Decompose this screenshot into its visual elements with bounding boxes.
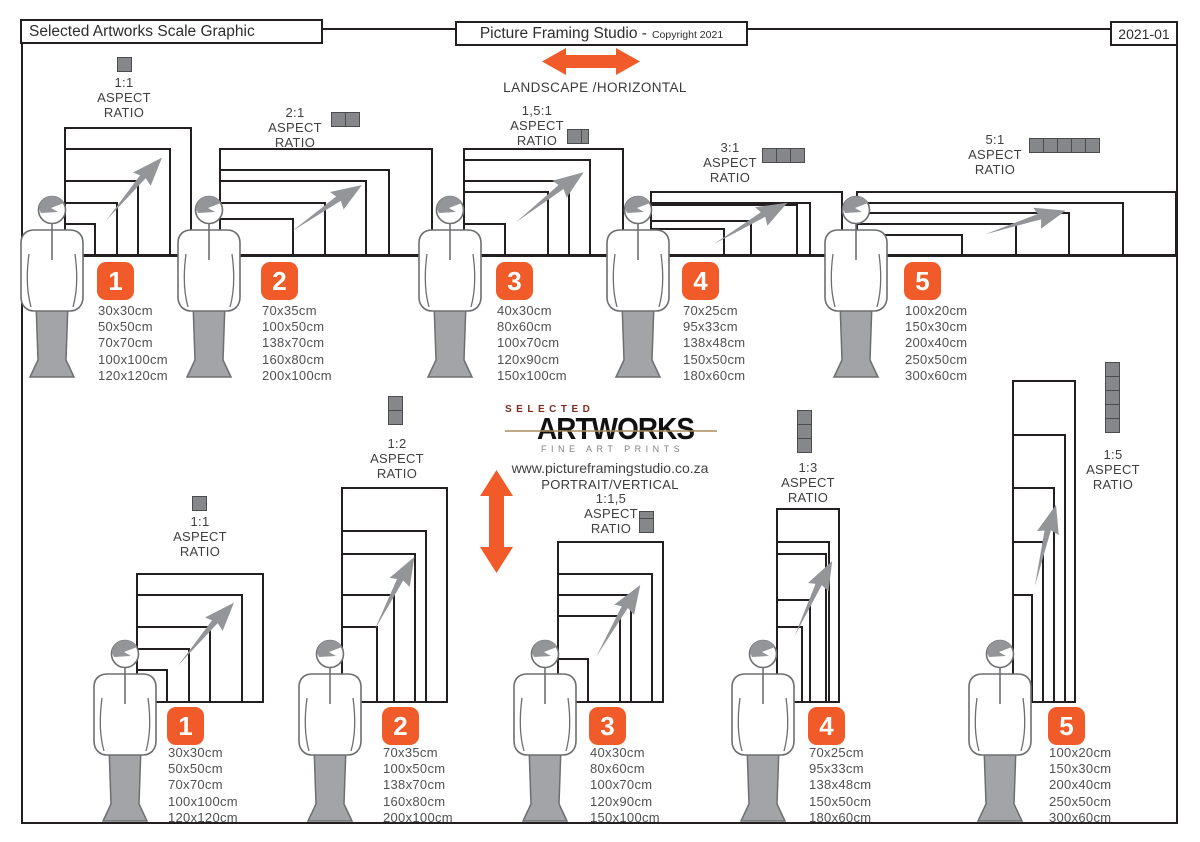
aspect-ratio-value: 1:3 — [748, 461, 868, 476]
aspect-ratio-icon — [388, 396, 403, 425]
size-list: 40x30cm 80x60cm 100x70cm 120x90cm 150x10… — [497, 303, 567, 384]
logo-tagline: FINE ART PRINTS — [541, 444, 684, 454]
studio-name: Picture Framing Studio - — [480, 25, 647, 43]
aspect-ratio-word: RATIO — [935, 163, 1055, 178]
aspect-ratio-icon — [639, 511, 654, 533]
copyright-text: Copyright 2021 — [652, 29, 723, 41]
aspect-ratio-word: ASPECT — [140, 530, 260, 545]
aspect-ratio-label: 1:5ASPECTRATIO — [1053, 448, 1173, 492]
scale-figure — [412, 194, 488, 384]
doc-code: 2021-01 — [1118, 26, 1169, 42]
scale-figure — [87, 638, 163, 828]
person-icon — [412, 194, 488, 384]
unit-square — [1105, 404, 1120, 419]
aspect-ratio-word: RATIO — [337, 467, 457, 482]
aspect-ratio-value: 1:5 — [1053, 448, 1173, 463]
aspect-ratio-word: RATIO — [140, 545, 260, 560]
aspect-ratio-word: RATIO — [235, 136, 355, 151]
unit-square — [1029, 138, 1044, 153]
size-list: 70x35cm 100x50cm 138x70cm 160x80cm 200x1… — [383, 745, 453, 826]
aspect-ratio-word: ASPECT — [64, 91, 184, 106]
unit-square — [388, 396, 403, 411]
unit-square — [1071, 138, 1086, 153]
aspect-ratio-icon — [1029, 138, 1100, 153]
aspect-ratio-icon — [762, 148, 805, 163]
unit-square — [345, 112, 360, 127]
aspect-ratio-label: 1:2ASPECTRATIO — [337, 437, 457, 481]
person-icon — [14, 194, 90, 384]
unit-square — [117, 57, 132, 72]
unit-square — [1085, 138, 1100, 153]
aspect-ratio-word: RATIO — [1053, 478, 1173, 493]
logo-artworks-text: ARTWORKS — [537, 411, 694, 447]
group-number-badge: 2 — [382, 707, 419, 745]
person-icon — [292, 638, 368, 828]
poster-page: Selected Artworks Scale Graphic Picture … — [0, 0, 1200, 842]
size-list: 100x20cm 150x30cm 200x40cm 250x50cm 300x… — [905, 303, 967, 384]
logo-strike-line — [505, 430, 717, 432]
aspect-ratio-word: ASPECT — [1053, 463, 1173, 478]
aspect-ratio-icon — [797, 410, 812, 453]
aspect-ratio-value: 1:2 — [337, 437, 457, 452]
aspect-ratio-icon — [192, 496, 207, 511]
unit-square — [331, 112, 346, 127]
person-icon — [725, 638, 801, 828]
size-list: 30x30cm 50x50cm 70x70cm 100x100cm 120x12… — [168, 745, 238, 826]
aspect-ratio-value: 1:1 — [140, 515, 260, 530]
size-list: 100x20cm 150x30cm 200x40cm 250x50cm 300x… — [1049, 745, 1111, 826]
person-icon — [962, 638, 1038, 828]
size-list: 40x30cm 80x60cm 100x70cm 120x90cm 150x10… — [590, 745, 660, 826]
studio-title-box: Picture Framing Studio - Copyright 2021 — [455, 21, 748, 46]
unit-square — [192, 496, 207, 511]
group-number-badge: 1 — [97, 262, 134, 300]
size-list: 70x25cm 95x33cm 138x48cm 150x50cm 180x60… — [809, 745, 871, 826]
page-title-box: Selected Artworks Scale Graphic — [20, 19, 323, 44]
group-number-badge: 5 — [904, 262, 941, 300]
aspect-ratio-label: 1:1ASPECTRATIO — [64, 76, 184, 120]
person-icon — [818, 194, 894, 384]
aspect-ratio-value: 1:1 — [64, 76, 184, 91]
unit-square — [797, 410, 812, 425]
aspect-ratio-word: RATIO — [64, 106, 184, 121]
person-icon — [507, 638, 583, 828]
unit-square — [762, 148, 777, 163]
unit-square — [1105, 390, 1120, 405]
aspect-ratio-icon — [117, 57, 132, 72]
scale-figure — [725, 638, 801, 828]
scale-figure — [14, 194, 90, 384]
unit-square — [388, 410, 403, 425]
group-number-badge: 4 — [808, 707, 845, 745]
unit-square — [1105, 376, 1120, 391]
scale-figure — [818, 194, 894, 384]
scale-figure — [171, 194, 247, 384]
vertical-double-arrow-icon — [480, 470, 513, 578]
aspect-ratio-word: RATIO — [670, 171, 790, 186]
aspect-ratio-icon — [331, 112, 360, 127]
unit-square — [567, 129, 582, 144]
scale-figure — [507, 638, 583, 828]
aspect-ratio-word: RATIO — [748, 491, 868, 506]
unit-square — [797, 438, 812, 453]
doc-code-box: 2021-01 — [1110, 21, 1178, 46]
unit-square — [1043, 138, 1058, 153]
horizontal-double-arrow-icon — [542, 48, 640, 80]
size-list: 70x25cm 95x33cm 138x48cm 150x50cm 180x60… — [683, 303, 745, 384]
aspect-ratio-label: 1:3ASPECTRATIO — [748, 461, 868, 505]
person-icon — [87, 638, 163, 828]
unit-square — [639, 518, 654, 533]
aspect-ratio-icon — [567, 129, 589, 144]
group-number-badge: 3 — [496, 262, 533, 300]
group-number-badge: 4 — [682, 262, 719, 300]
group-number-badge: 2 — [261, 262, 298, 300]
person-icon — [171, 194, 247, 384]
group-number-badge: 3 — [589, 707, 626, 745]
landscape-section-label: LANDSCAPE /HORIZONTAL — [495, 80, 695, 95]
aspect-ratio-word: ASPECT — [748, 476, 868, 491]
person-icon — [600, 194, 676, 384]
scale-figure — [600, 194, 676, 384]
group-number-badge: 5 — [1048, 707, 1085, 745]
unit-square — [790, 148, 805, 163]
unit-square — [1105, 418, 1120, 433]
aspect-ratio-value: 1:1,5 — [551, 492, 671, 507]
unit-square — [776, 148, 791, 163]
unit-square — [581, 129, 589, 144]
size-list: 30x30cm 50x50cm 70x70cm 100x100cm 120x12… — [98, 303, 168, 384]
page-title: Selected Artworks Scale Graphic — [29, 23, 255, 41]
size-list: 70x35cm 100x50cm 138x70cm 160x80cm 200x1… — [262, 303, 332, 384]
aspect-ratio-label: 1:1ASPECTRATIO — [140, 515, 260, 559]
unit-square — [1057, 138, 1072, 153]
unit-square — [1105, 362, 1120, 377]
aspect-ratio-icon — [1105, 362, 1120, 433]
aspect-ratio-value: 1,5:1 — [477, 104, 597, 119]
aspect-ratio-word: ASPECT — [337, 452, 457, 467]
scale-figure — [292, 638, 368, 828]
unit-square — [797, 424, 812, 439]
group-number-badge: 1 — [167, 707, 204, 745]
scale-figure — [962, 638, 1038, 828]
